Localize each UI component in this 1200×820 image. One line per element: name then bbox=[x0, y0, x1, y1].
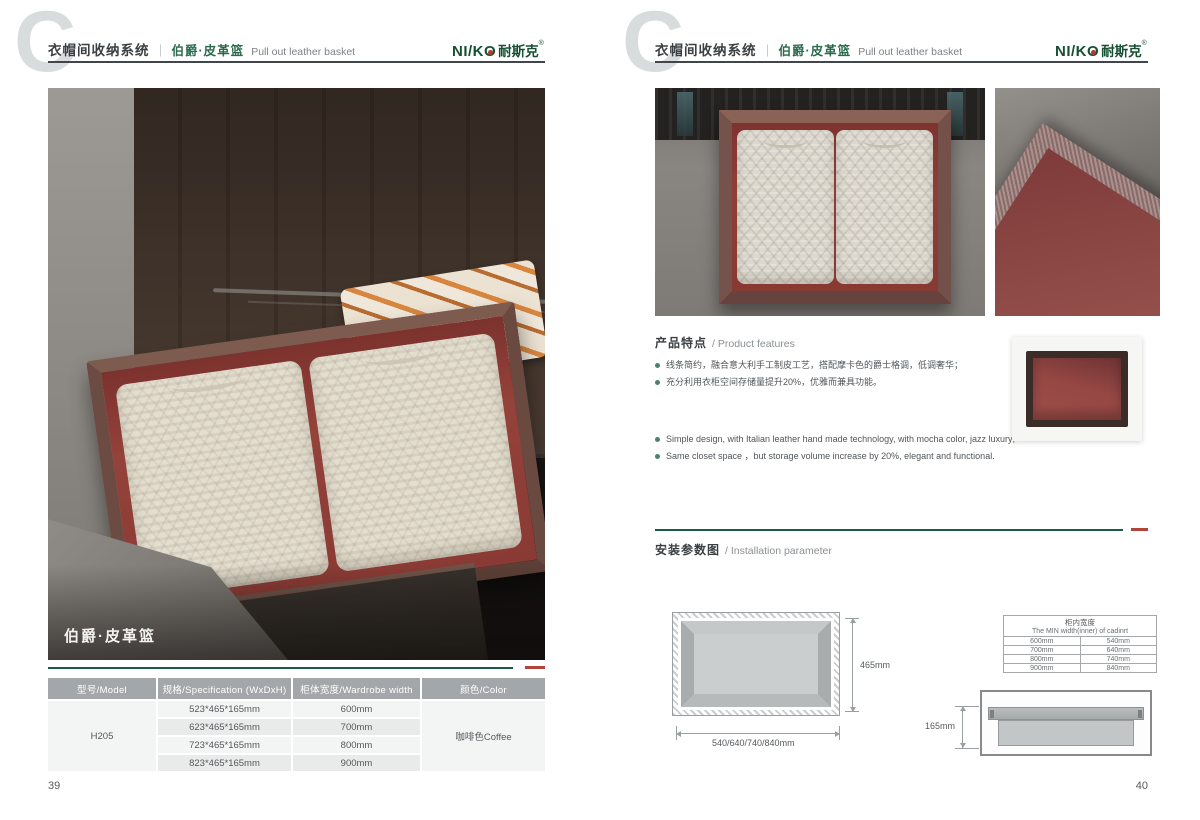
min-width-cell: 740mm bbox=[1080, 655, 1157, 664]
topview-diagram bbox=[672, 612, 840, 716]
page-header-left: 衣帽间收纳系统｜伯爵·皮革篮Pull out leather basket bbox=[48, 39, 355, 60]
brand-logo-left: NI/KO耐斯克® bbox=[452, 40, 544, 61]
brand-cn: 耐斯克 bbox=[1101, 44, 1142, 59]
spec-cell: 523*465*165mm bbox=[158, 701, 291, 717]
dimension-tick bbox=[676, 726, 677, 740]
folded-sweater bbox=[737, 130, 834, 285]
model-cell: H205 bbox=[48, 701, 156, 771]
topview-inner bbox=[678, 618, 834, 710]
depth-dimension-label: 465mm bbox=[860, 660, 890, 670]
brand-logo-right: NI/KO耐斯克® bbox=[1055, 40, 1147, 61]
page-header-right: 衣帽间收纳系统｜伯爵·皮革篮Pull out leather basket bbox=[655, 39, 962, 60]
brand-registered-mark: ® bbox=[539, 40, 544, 47]
features-title-cn: 产品特点 bbox=[655, 336, 707, 350]
min-width-cell: 600mm bbox=[1004, 637, 1081, 646]
width-cell: 700mm bbox=[293, 719, 420, 735]
header-rule-left bbox=[48, 61, 545, 63]
width-dimension-label: 540/640/740/840mm bbox=[712, 738, 795, 748]
page-number-left: 39 bbox=[48, 780, 60, 792]
dimension-tick bbox=[845, 618, 859, 619]
color-cell: 咖啡色Coffee bbox=[422, 701, 545, 771]
sweater-collar bbox=[364, 342, 440, 368]
header-product-en: Pull out leather basket bbox=[251, 46, 355, 58]
dimension-line-height bbox=[962, 706, 963, 748]
basket-corner-frame bbox=[995, 123, 1160, 316]
bullet-text: 充分利用衣柜空间存储量提升20%，优雅而兼具功能。 bbox=[666, 377, 882, 389]
spec-cell: 723*465*165mm bbox=[158, 737, 291, 753]
spec-table-header: 规格/Specification (WxDxH) bbox=[158, 678, 291, 699]
brand-cn: 耐斯克 bbox=[498, 44, 539, 59]
metal-glint bbox=[677, 92, 693, 136]
bullet-text: Simple design, with Italian leather hand… bbox=[666, 434, 1015, 446]
header-category: 衣帽间收纳系统 bbox=[655, 43, 757, 58]
product-thumbnail bbox=[1012, 337, 1142, 441]
page-number-right: 40 bbox=[1118, 780, 1148, 792]
separator-green-left bbox=[48, 667, 513, 669]
min-width-table-header: 柜内宽度 The MIN width(inner) of cadinrt bbox=[1004, 616, 1157, 637]
brand-registered-mark: ® bbox=[1142, 40, 1147, 47]
spec-table-header: 柜体宽度/Wardrobe width bbox=[293, 678, 420, 699]
header-separator: ｜ bbox=[762, 44, 774, 58]
bullet-text: Same closet space ，but storage volume in… bbox=[666, 451, 995, 463]
bullet-dot-icon bbox=[655, 380, 660, 385]
header-rule-right bbox=[655, 61, 1148, 63]
header-product-en: Pull out leather basket bbox=[858, 46, 962, 58]
catalog-spread: C 衣帽间收纳系统｜伯爵·皮革篮Pull out leather basket … bbox=[0, 0, 1200, 820]
empty-basket-thumbnail bbox=[1026, 351, 1128, 427]
right-photo-corner-detail bbox=[995, 88, 1160, 316]
right-photo-basket-topview bbox=[655, 88, 985, 316]
width-cell: 800mm bbox=[293, 737, 420, 753]
bullet-dot-icon bbox=[655, 454, 660, 459]
photo-caption: 伯爵·皮革篮 bbox=[64, 625, 156, 646]
bullet-dot-icon bbox=[655, 437, 660, 442]
folded-sweater bbox=[836, 130, 933, 285]
installation-title-cn: 安装参数图 bbox=[655, 543, 720, 557]
feature-bullet-en: Same closet space ，but storage volume in… bbox=[655, 451, 1135, 463]
bullet-dot-icon bbox=[655, 363, 660, 368]
brand-latin: NI/KO bbox=[1055, 43, 1099, 60]
header-separator: ｜ bbox=[155, 44, 167, 58]
width-cell: 600mm bbox=[293, 701, 420, 717]
min-width-cell: 700mm bbox=[1004, 646, 1081, 655]
brand-latin: NI/KO bbox=[452, 43, 496, 60]
installation-title-en: / Installation parameter bbox=[725, 545, 832, 557]
separator-red-right bbox=[1131, 528, 1148, 531]
header-category: 衣帽间收纳系统 bbox=[48, 43, 150, 58]
dimension-tick bbox=[839, 726, 840, 740]
separator-red-left bbox=[525, 666, 545, 669]
header-product-cn: 伯爵·皮革篮 bbox=[172, 44, 245, 58]
min-width-table: 柜内宽度 The MIN width(inner) of cadinrt 600… bbox=[1003, 615, 1157, 673]
height-dimension-label: 165mm bbox=[925, 721, 955, 731]
spec-table: 型号/Model 规格/Specification (WxDxH) 柜体宽度/W… bbox=[48, 678, 545, 771]
min-width-title-cn: 柜内宽度 bbox=[1004, 617, 1156, 628]
min-width-cell: 540mm bbox=[1080, 637, 1157, 646]
spec-cell: 623*465*165mm bbox=[158, 719, 291, 735]
features-section-title: 产品特点/ Product features bbox=[655, 334, 795, 352]
sweater-collar bbox=[863, 134, 906, 148]
bullet-text: 线条简约，融合意大利手工制皮工艺，搭配摩卡色的爵士格调，低调奢华； bbox=[666, 360, 963, 372]
folded-sweater bbox=[308, 332, 523, 572]
dimension-tick bbox=[845, 711, 859, 712]
leather-basket-tray bbox=[719, 110, 951, 304]
spec-table-header: 型号/Model bbox=[48, 678, 156, 699]
dimension-tick bbox=[955, 748, 979, 749]
min-width-cell: 900mm bbox=[1004, 664, 1081, 673]
features-title-en: / Product features bbox=[712, 338, 795, 350]
sweater-collar bbox=[171, 369, 247, 395]
dimension-line-depth bbox=[852, 618, 853, 712]
min-width-cell: 800mm bbox=[1004, 655, 1081, 664]
sideview-basket-body bbox=[998, 720, 1134, 746]
installation-section-title: 安装参数图/ Installation parameter bbox=[655, 541, 832, 559]
min-width-title-en: The MIN width(inner) of cadinrt bbox=[1004, 628, 1156, 635]
dimension-line-width bbox=[676, 733, 840, 734]
topview-basket-frame bbox=[681, 621, 831, 707]
spec-cell: 823*465*165mm bbox=[158, 755, 291, 771]
spec-table-header: 颜色/Color bbox=[422, 678, 545, 699]
header-product-cn: 伯爵·皮革篮 bbox=[779, 44, 852, 58]
sideview-diagram bbox=[980, 690, 1152, 756]
sweater-collar bbox=[764, 134, 807, 148]
min-width-cell: 640mm bbox=[1080, 646, 1157, 655]
left-photo-wardrobe-scene: 伯爵·皮革篮 bbox=[48, 88, 545, 660]
dimension-tick bbox=[955, 706, 979, 707]
sideview-top-rail bbox=[988, 707, 1144, 720]
min-width-cell: 840mm bbox=[1080, 664, 1157, 673]
width-cell: 900mm bbox=[293, 755, 420, 771]
separator-green-right bbox=[655, 529, 1123, 531]
